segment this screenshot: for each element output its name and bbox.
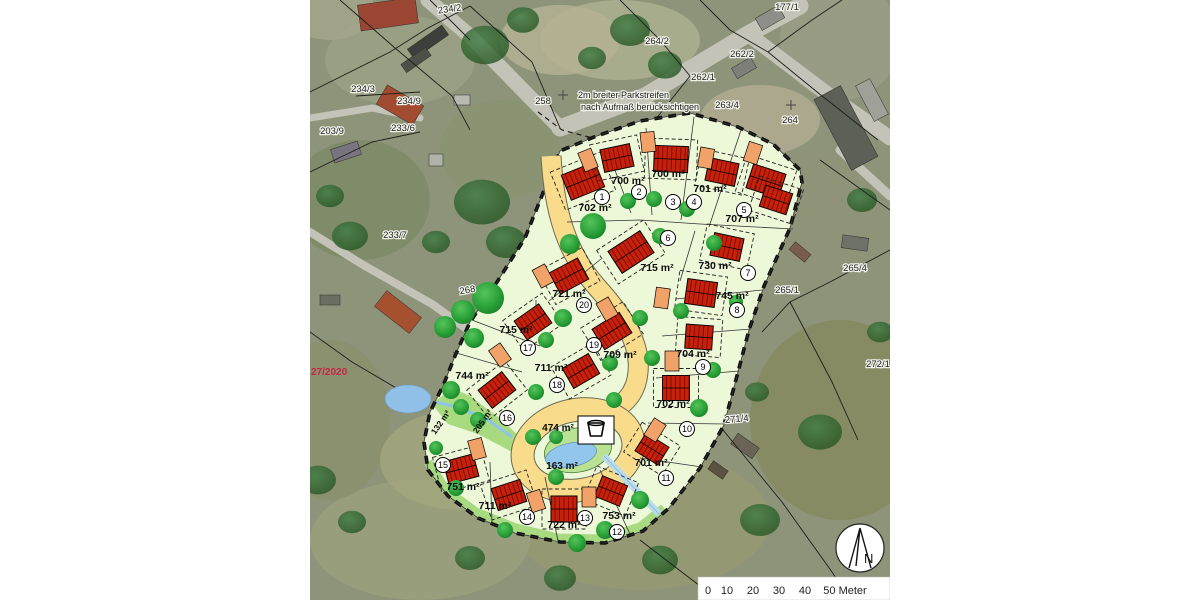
parcel-number-label: 233/7 <box>383 230 407 241</box>
parcel-number-label: 258 <box>535 96 551 107</box>
parcel-number-label: 262/2 <box>730 49 754 60</box>
tree <box>451 300 475 324</box>
tree <box>497 522 513 538</box>
north-label: N <box>864 551 873 566</box>
lot-number: 13 <box>580 513 590 523</box>
map-canvas: 1702 m²2700 m²3700 m²4701 m²5707 m²6715 … <box>310 0 890 600</box>
aerial-tree <box>454 180 510 225</box>
lot-number: 7 <box>745 268 750 278</box>
scalebar-label: 20 <box>747 585 759 597</box>
lot-area-label: 711 m² <box>479 500 512 512</box>
tree <box>525 429 541 445</box>
garage <box>582 487 596 507</box>
lot-number: 15 <box>438 460 448 470</box>
lot-area-label: 715 m² <box>499 324 533 336</box>
tree <box>538 332 554 348</box>
parcel-number-label: 234/3 <box>351 84 375 95</box>
garage <box>654 287 671 309</box>
lot-number: 2 <box>636 187 641 197</box>
lot-number: 20 <box>579 300 589 310</box>
tree <box>464 328 484 348</box>
aerial-tree <box>461 26 509 64</box>
aerial-tree <box>642 546 678 575</box>
scalebar-label: 10 <box>721 585 733 597</box>
tree <box>560 234 580 254</box>
lot-area-label: 721 m² <box>552 288 586 300</box>
screenshot-root: 1702 m²2700 m²3700 m²4701 m²5707 m²6715 … <box>0 0 1200 600</box>
scalebar-label: 40 <box>799 585 811 597</box>
scalebar-label: 0 <box>705 585 711 597</box>
aerial-tree <box>740 504 780 536</box>
lot-area-label: 700 m² <box>611 175 645 187</box>
aerial-tree <box>847 188 877 212</box>
lot-number: 17 <box>523 343 533 353</box>
lot-area-label: 707 m² <box>725 213 759 225</box>
lot-number: 9 <box>700 362 705 372</box>
lot-number: 8 <box>734 305 739 315</box>
tree <box>644 350 660 366</box>
parcel-number-label: 264 <box>782 115 798 126</box>
parcel-number-label: 272/1 <box>866 359 890 370</box>
scalebar-label: 30 <box>773 585 785 597</box>
pond <box>385 385 431 413</box>
note-line2: nach Aufmaß berücksichtigen <box>581 102 699 112</box>
watermark-red: 27/2020 <box>311 367 348 378</box>
lot-area-label: 709 m² <box>603 349 637 361</box>
well-symbol <box>578 416 614 444</box>
tree <box>453 399 469 415</box>
lot-area-label: 711 m² <box>535 362 568 374</box>
lot-number: 11 <box>661 473 670 483</box>
lot-number: 4 <box>691 197 696 207</box>
lot-number: 18 <box>552 380 562 390</box>
parcel-number-label: 265/4 <box>843 263 867 274</box>
lot-number: 14 <box>522 512 532 522</box>
tree <box>580 213 606 239</box>
lot-area-label: 730 m² <box>698 260 732 272</box>
parcel-number-label: 264/2 <box>645 36 669 47</box>
tree <box>434 316 456 338</box>
aerial-tree <box>544 565 576 591</box>
lot-area-label: 751 m² <box>446 481 480 493</box>
parcel-number-label: 233/6 <box>391 123 415 134</box>
lot-number: 10 <box>682 424 692 434</box>
parcel-number-label: 271/4 <box>724 413 749 426</box>
aerial-tree <box>332 222 368 251</box>
tree <box>632 310 648 326</box>
tree <box>606 392 622 408</box>
aerial-building <box>320 295 340 305</box>
tree <box>442 381 460 399</box>
tree <box>631 491 649 509</box>
aerial-tree <box>648 51 682 78</box>
lot-area-label: 722 m² <box>547 519 581 531</box>
lot-number: 19 <box>589 340 599 350</box>
parcel-number-label: 265/1 <box>775 285 799 296</box>
aerial-tree <box>455 546 485 570</box>
tree <box>706 235 722 251</box>
tree <box>429 441 443 455</box>
lot-area-label: 745 m² <box>715 290 749 302</box>
tree <box>646 191 662 207</box>
parcel-number-label: 263/4 <box>715 100 739 111</box>
lot-area-label: 702 m² <box>578 202 612 214</box>
lot-number: 16 <box>502 413 512 423</box>
parcel-number-label: 203/9 <box>320 126 344 137</box>
lot-area-label: 753 m² <box>602 510 636 522</box>
lot-number: 12 <box>612 527 622 537</box>
lot-area-label: 700 m² <box>651 168 685 180</box>
area-label: 474 m² <box>542 423 574 434</box>
note-line1: 2m breiter Parkstreifen <box>578 90 669 100</box>
aerial-tree <box>507 7 539 33</box>
lot-number: 1 <box>599 192 604 202</box>
lot-number: 3 <box>670 197 675 207</box>
aerial-tree <box>610 14 650 46</box>
tree <box>472 282 504 314</box>
tree <box>554 309 572 327</box>
garage <box>640 131 656 152</box>
tree <box>568 534 586 552</box>
aerial-tree <box>745 382 769 401</box>
lot-area-label: 701 m² <box>693 183 727 195</box>
garage <box>697 147 714 169</box>
lot-area-label: 715 m² <box>640 262 674 274</box>
aerial-tree <box>422 231 450 253</box>
parcel-number-label: 234/9 <box>397 96 421 107</box>
scalebar-label: 50 Meter <box>823 585 867 597</box>
lot-area-label: 744 m² <box>455 370 489 382</box>
lot-area-label: 702 m² <box>656 398 690 410</box>
aerial-tree <box>338 511 366 533</box>
aerial-tree <box>578 47 606 69</box>
tree <box>690 399 708 417</box>
lot-number: 6 <box>665 233 670 243</box>
area-label: 163 m² <box>546 461 578 472</box>
tree <box>673 303 689 319</box>
parcel-number-label: 177/1 <box>775 2 799 13</box>
parcel-number-label: 262/1 <box>691 72 715 83</box>
lot-area-label: 701 m² <box>634 457 668 469</box>
aerial-tree <box>798 414 842 449</box>
lot-area-label: 704 m² <box>676 348 710 360</box>
aerial-building <box>429 154 443 166</box>
tree <box>528 384 544 400</box>
aerial-tree <box>316 185 344 207</box>
site-plan-svg: 1702 m²2700 m²3700 m²4701 m²5707 m²6715 … <box>310 0 890 600</box>
